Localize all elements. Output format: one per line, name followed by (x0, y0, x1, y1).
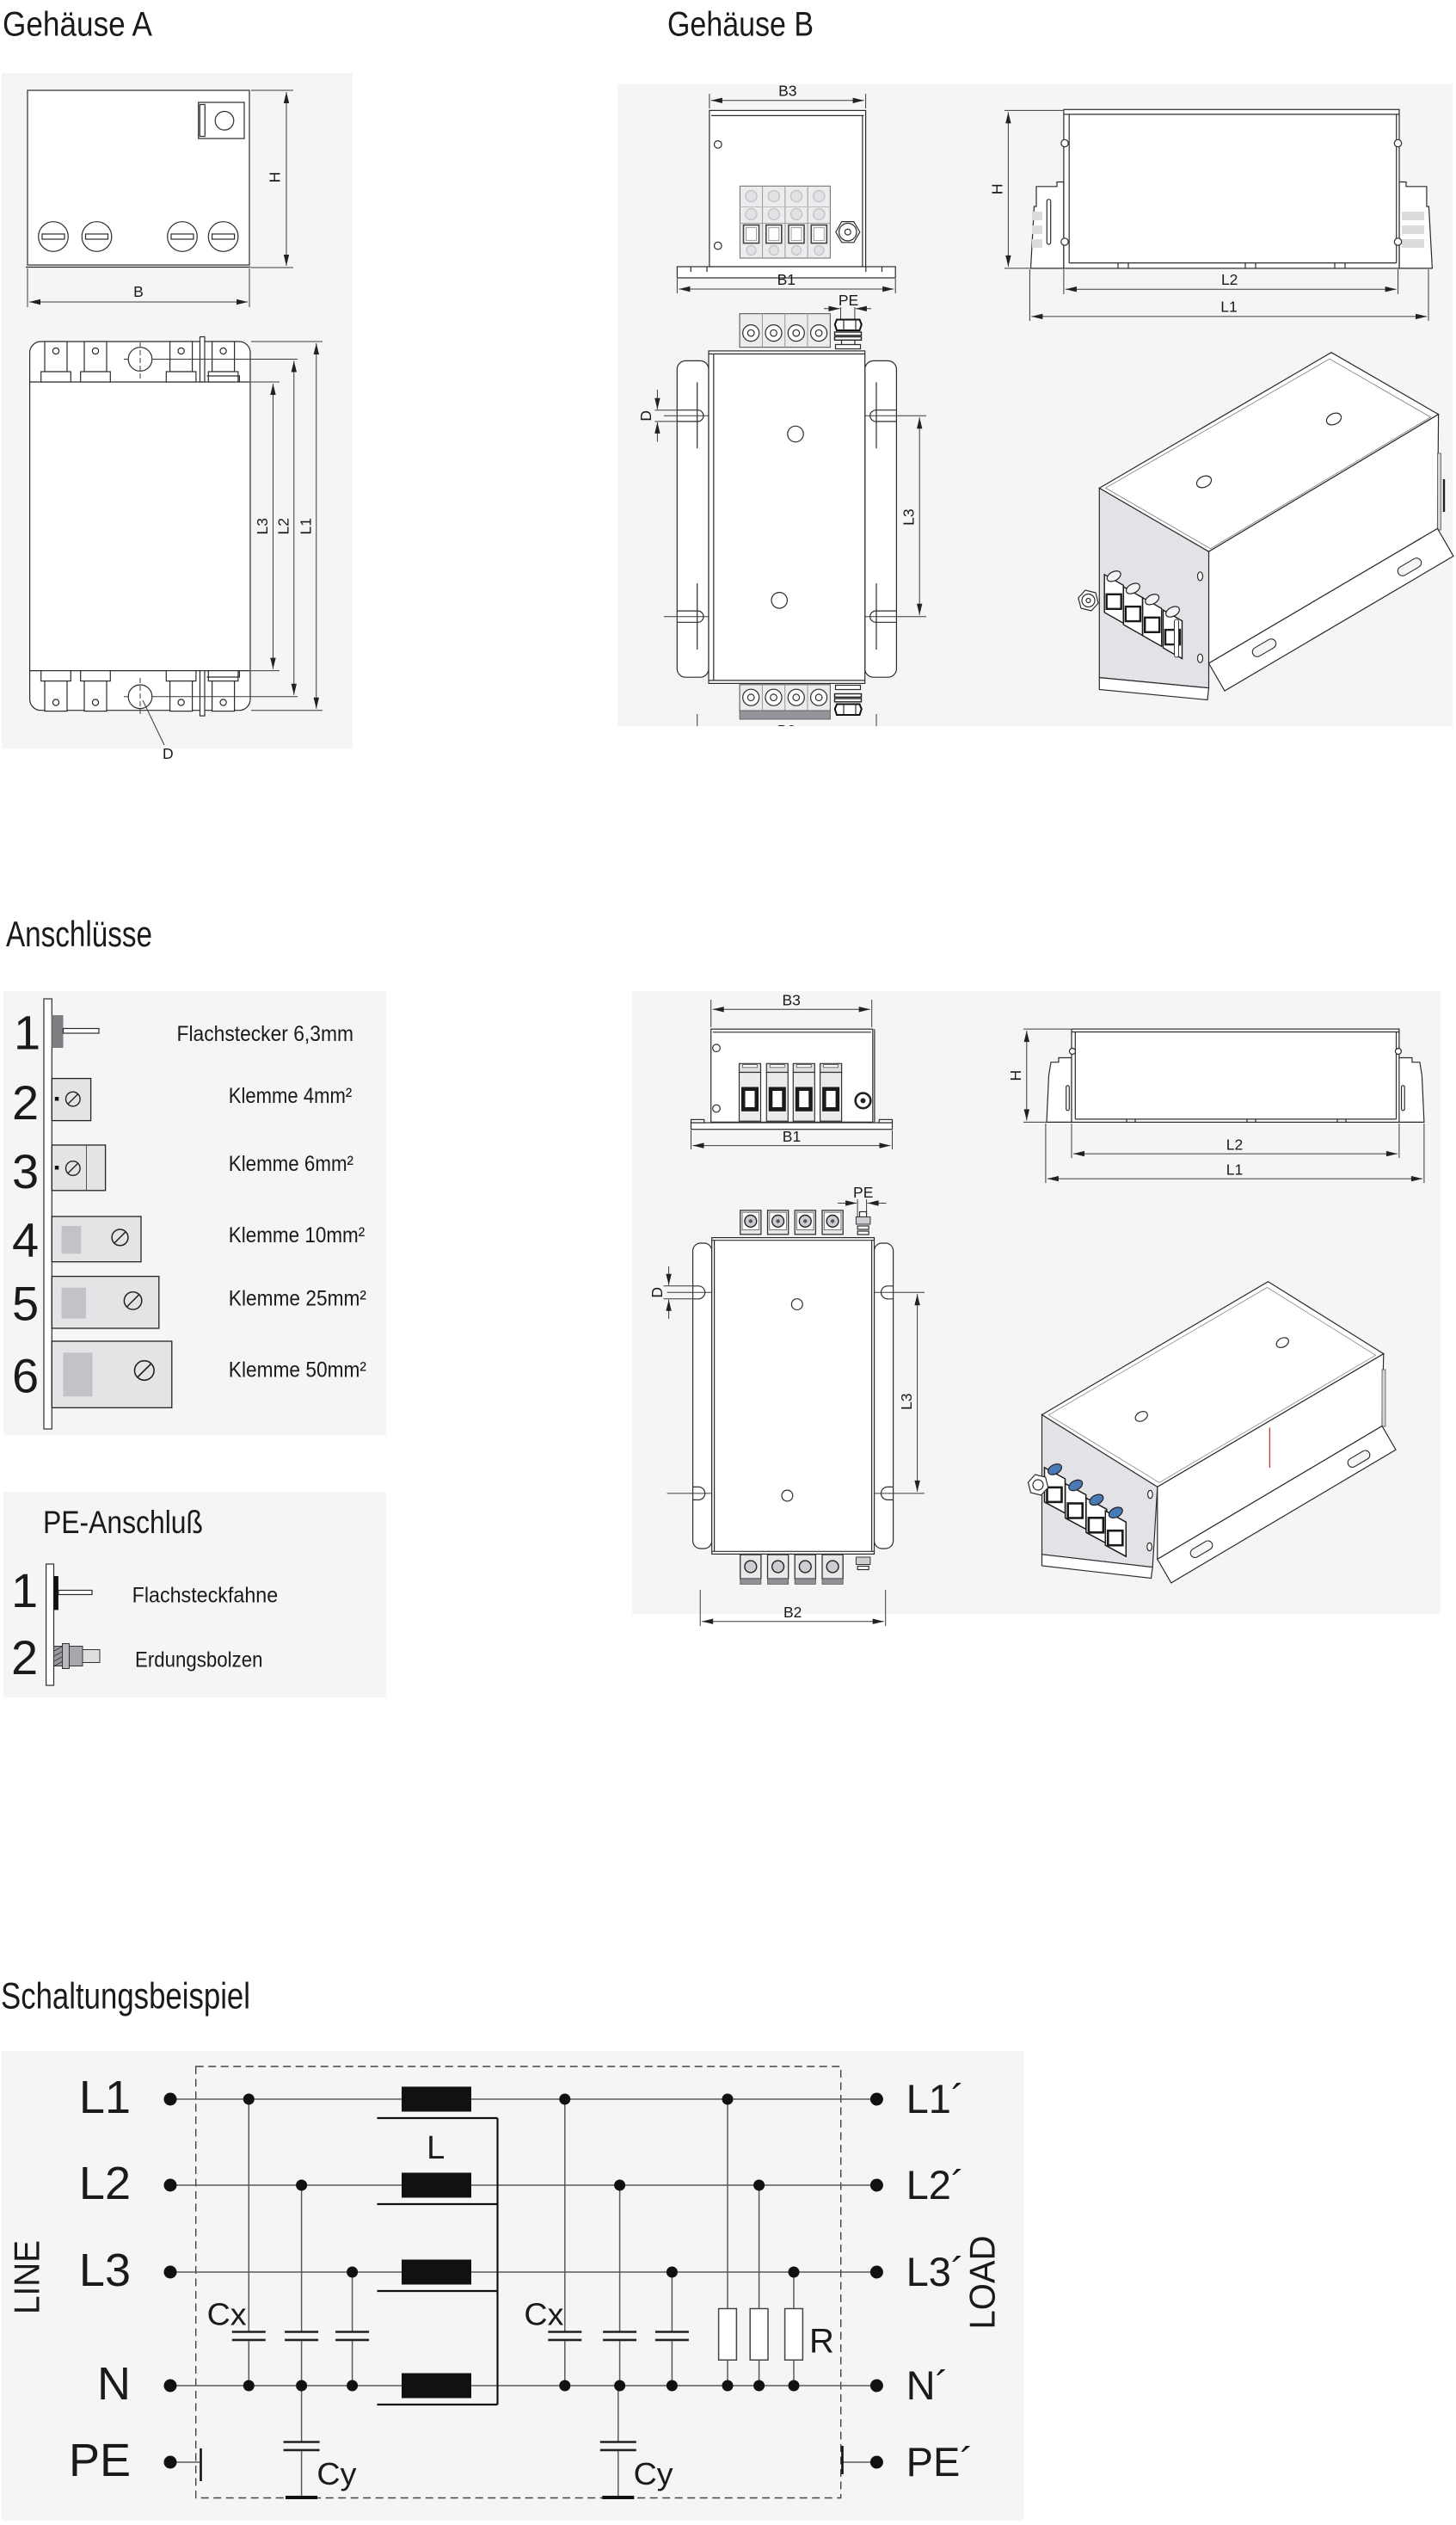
svg-text:L3: L3 (254, 518, 271, 534)
svg-text:N´: N´ (906, 2362, 949, 2408)
svg-text:L3´: L3´ (906, 2249, 965, 2294)
svg-text:Cy: Cy (634, 2456, 673, 2491)
svg-text:L2´: L2´ (906, 2162, 965, 2208)
svg-text:Schaltungsbeispiel: Schaltungsbeispiel (1, 1976, 250, 2017)
svg-text:PE-Anschluß: PE-Anschluß (43, 1505, 203, 1540)
svg-text:3: 3 (12, 1144, 39, 1198)
svg-text:Gehäuse A: Gehäuse A (3, 6, 152, 44)
svg-text:H: H (267, 172, 284, 183)
svg-text:5: 5 (12, 1277, 39, 1331)
svg-text:H: H (989, 183, 1006, 194)
svg-text:Erdungsbolzen: Erdungsbolzen (135, 1648, 263, 1672)
svg-text:PE: PE (839, 292, 858, 309)
svg-text:L2: L2 (1221, 271, 1238, 288)
svg-text:B3: B3 (782, 992, 800, 1009)
svg-text:N: N (97, 2358, 131, 2410)
svg-text:Cy: Cy (316, 2456, 356, 2491)
svg-text:L2: L2 (1226, 1136, 1243, 1154)
svg-text:B1: B1 (777, 271, 796, 288)
svg-text:1: 1 (11, 1563, 38, 1617)
svg-text:L: L (427, 2130, 445, 2166)
svg-text:PE: PE (853, 1184, 873, 1201)
svg-text:L1: L1 (1226, 1161, 1243, 1179)
svg-text:D: D (163, 745, 174, 762)
svg-text:Flachstecker 6,3mm: Flachstecker 6,3mm (177, 1022, 354, 1046)
svg-text:Klemme 25mm²: Klemme 25mm² (229, 1287, 366, 1311)
svg-text:L1: L1 (1220, 299, 1237, 316)
svg-text:Cx: Cx (524, 2296, 563, 2331)
svg-text:L3: L3 (79, 2245, 131, 2296)
svg-text:Cx: Cx (207, 2296, 247, 2331)
svg-text:B2: B2 (777, 722, 796, 739)
svg-text:L3: L3 (900, 508, 918, 525)
svg-text:L3: L3 (898, 1393, 915, 1409)
svg-text:L1: L1 (298, 518, 315, 534)
svg-text:L2: L2 (79, 2158, 131, 2209)
svg-text:Flachsteckfahne: Flachsteckfahne (132, 1584, 279, 1608)
svg-text:L2: L2 (275, 518, 292, 534)
svg-text:Klemme 10mm²: Klemme 10mm² (229, 1223, 365, 1247)
svg-text:PE: PE (69, 2435, 131, 2486)
svg-text:Anschlüsse: Anschlüsse (6, 914, 152, 954)
svg-text:R: R (809, 2323, 834, 2361)
svg-text:Gehäuse B: Gehäuse B (667, 6, 814, 44)
svg-text:Klemme 4mm²: Klemme 4mm² (229, 1084, 352, 1108)
svg-text:Klemme 50mm²: Klemme 50mm² (229, 1358, 366, 1383)
svg-text:2: 2 (12, 1075, 39, 1130)
svg-text:LOAD: LOAD (962, 2236, 1003, 2330)
svg-text:B: B (133, 283, 144, 300)
svg-text:B1: B1 (783, 1128, 801, 1145)
svg-text:L1´: L1´ (906, 2076, 965, 2122)
svg-text:PE´: PE´ (906, 2439, 974, 2485)
svg-text:6: 6 (12, 1348, 39, 1402)
svg-text:2: 2 (11, 1630, 38, 1684)
svg-text:D: D (648, 1287, 666, 1298)
svg-text:LINE: LINE (7, 2240, 47, 2314)
svg-text:B3: B3 (778, 83, 796, 100)
svg-text:B2: B2 (783, 1604, 802, 1621)
svg-text:L1: L1 (79, 2072, 131, 2123)
svg-text:4: 4 (12, 1213, 39, 1267)
svg-text:D: D (637, 410, 654, 422)
svg-text:H: H (1007, 1070, 1024, 1081)
svg-text:1: 1 (14, 1006, 40, 1060)
svg-text:Klemme 6mm²: Klemme 6mm² (229, 1152, 353, 1176)
